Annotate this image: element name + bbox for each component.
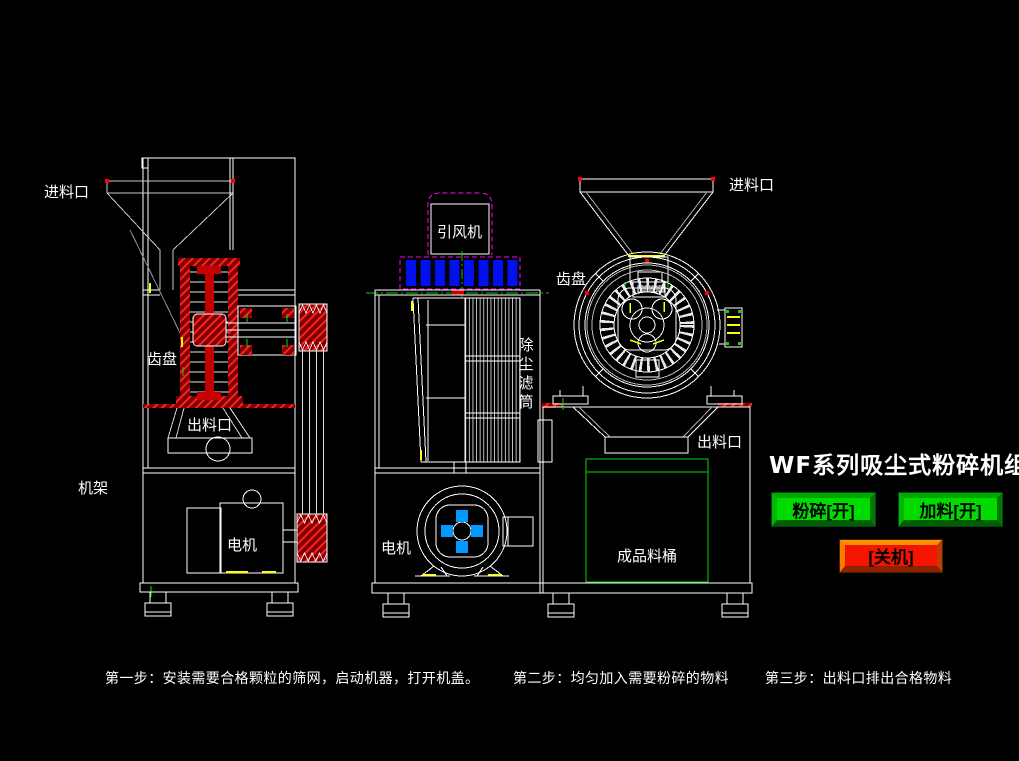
instruction-step-1: 第一步：安装需要合格颗粒的筛网，启动机器，打开机盖。 <box>105 668 479 688</box>
left-view-drawing <box>105 158 327 616</box>
label-left-motor: 电机 <box>227 537 257 554</box>
label-left-inlet: 进料口 <box>44 184 89 201</box>
label-draft-fan: 引风机 <box>437 224 482 241</box>
crush-on-button[interactable]: 粉碎[开] <box>772 493 875 526</box>
feed-on-button[interactable]: 加料[开] <box>899 493 1002 526</box>
machine-line-drawing <box>0 0 1019 761</box>
shutdown-button[interactable]: [关机] <box>840 540 942 572</box>
label-middle-motor: 电机 <box>381 540 411 557</box>
instruction-step-3: 第三步：出料口排出合格物料 <box>765 668 952 688</box>
label-right-outlet: 出料口 <box>697 434 742 451</box>
instruction-step-2: 第二步：均匀加入需要粉碎的物料 <box>513 668 729 688</box>
label-left-gear-disc: 齿盘 <box>147 351 177 368</box>
label-right-inlet: 进料口 <box>729 177 774 194</box>
label-left-outlet: 出料口 <box>187 417 232 434</box>
label-right-gear-disc: 齿盘 <box>556 271 586 288</box>
page-title: WF系列吸尘式粉碎机组 <box>769 446 1019 480</box>
hmi-screen: 进料口 齿盘 出料口 机架 电机 引风机 除尘滤筒 电机 进料口 齿盘 出料口 … <box>0 0 1019 761</box>
label-dust-filter: 除尘滤筒 <box>517 337 534 413</box>
label-product-barrel: 成品料桶 <box>617 548 677 565</box>
label-frame: 机架 <box>78 480 108 497</box>
